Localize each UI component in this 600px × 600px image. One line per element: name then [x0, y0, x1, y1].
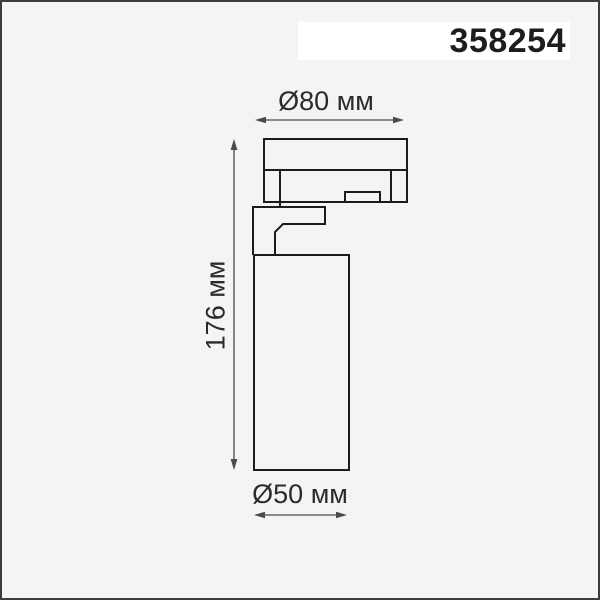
- lamp-body-outline: [254, 255, 349, 470]
- bottom-diameter-label: Ø50 мм: [200, 481, 400, 508]
- height-dimension-line: [231, 139, 238, 470]
- swivel-bracket-outline: [253, 202, 325, 255]
- top-diameter-label: Ø80 мм: [226, 88, 426, 115]
- track-adapter-outline: [264, 139, 407, 202]
- bottom-diameter-dimension-line: [254, 512, 347, 518]
- height-label: 176 мм: [203, 236, 230, 376]
- top-diameter-dimension-line: [255, 117, 404, 123]
- dimension-drawing-page: 358254: [0, 0, 600, 600]
